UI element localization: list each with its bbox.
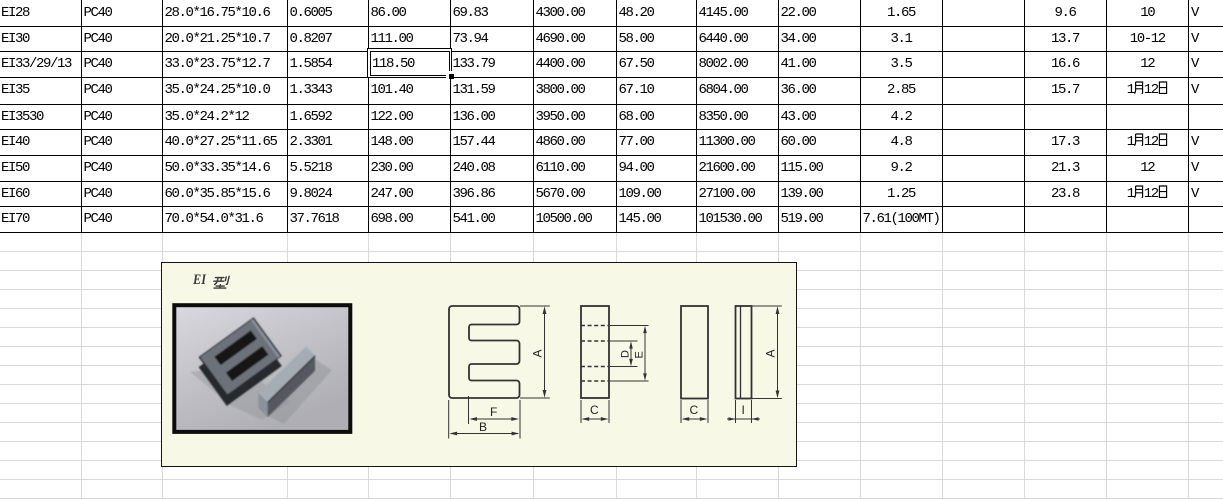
svg-text:A: A (764, 349, 778, 357)
svg-text:E: E (634, 351, 646, 358)
svg-text:B: B (479, 420, 487, 434)
svg-text:F: F (490, 405, 497, 419)
svg-text:I: I (742, 403, 745, 417)
svg-text:C: C (590, 403, 599, 417)
svg-text:C: C (690, 403, 699, 417)
svg-text:A: A (531, 349, 545, 357)
svg-text:D: D (620, 350, 632, 358)
